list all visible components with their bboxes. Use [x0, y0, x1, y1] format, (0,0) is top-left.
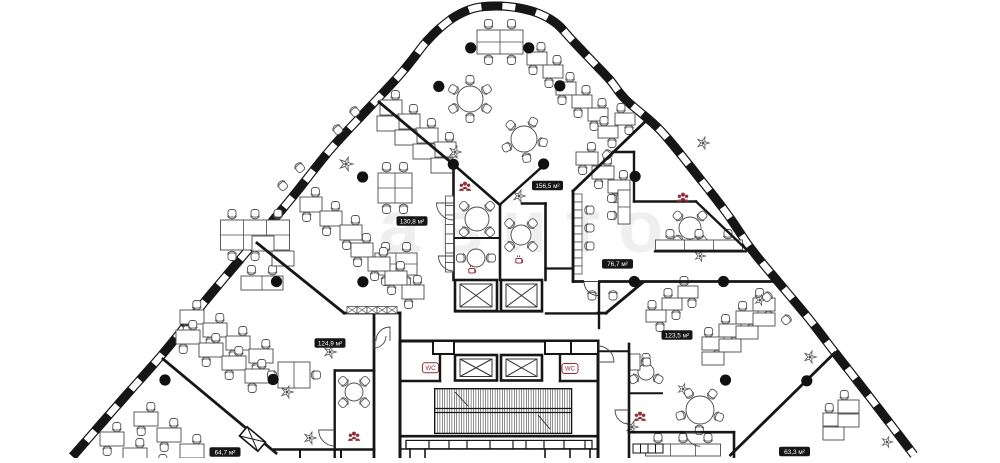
svg-text:76,7 м²: 76,7 м² [607, 261, 628, 268]
svg-text:WC: WC [426, 366, 437, 372]
svg-text:WC: WC [565, 367, 576, 373]
svg-text:64,7 м²: 64,7 м² [215, 449, 236, 456]
svg-text:63,3 м²: 63,3 м² [784, 449, 805, 456]
svg-text:авито: авито [379, 185, 682, 268]
svg-text:123,5 м²: 123,5 м² [665, 332, 689, 339]
svg-text:156,5 м²: 156,5 м² [535, 183, 559, 190]
svg-text:124,9 м²: 124,9 м² [318, 340, 342, 347]
svg-text:130,8 м²: 130,8 м² [400, 218, 424, 225]
